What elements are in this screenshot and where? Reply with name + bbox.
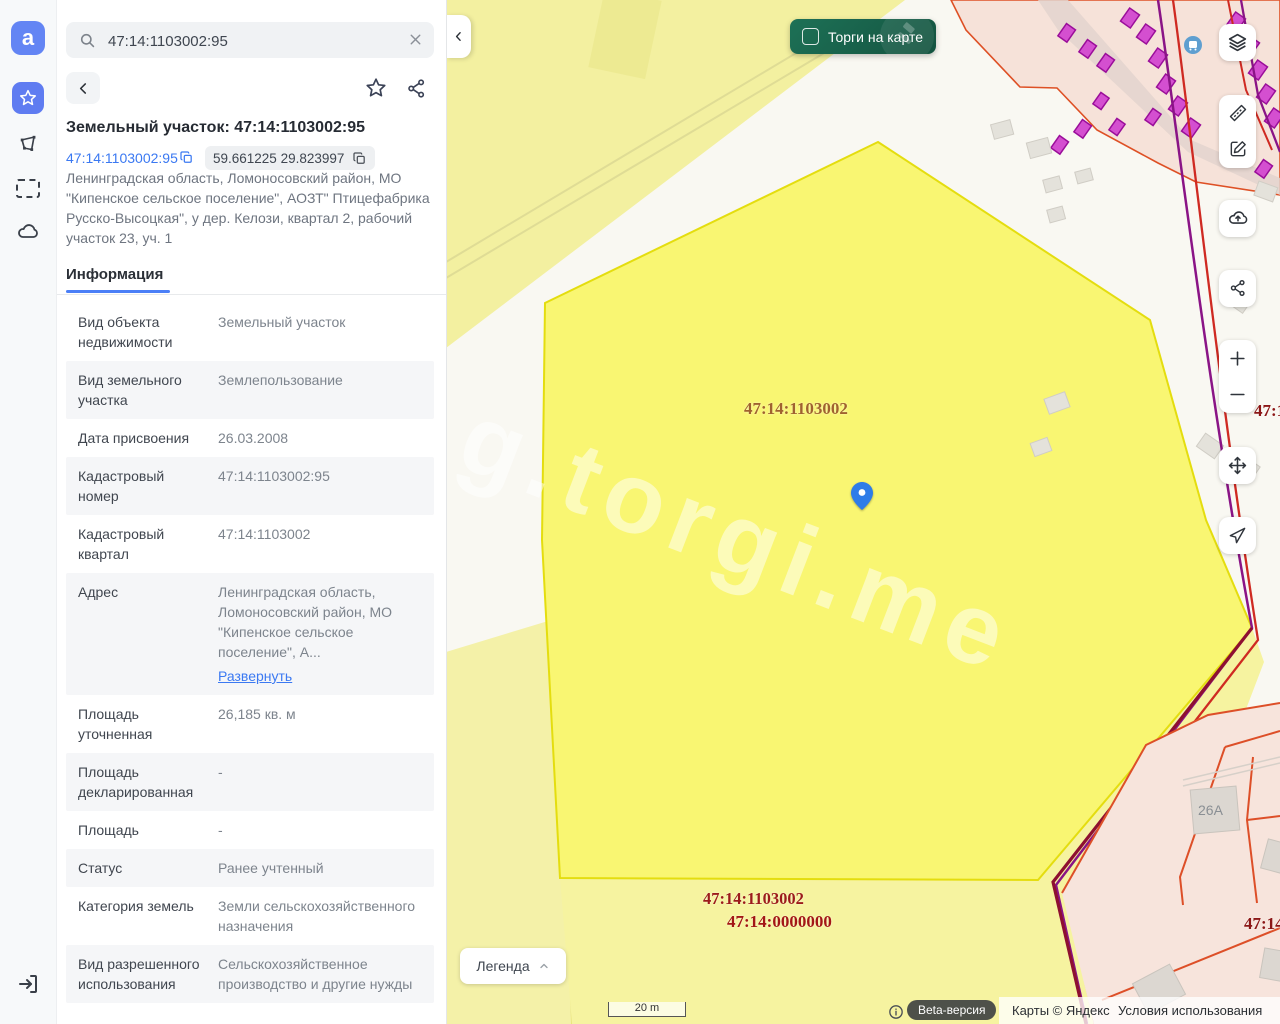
upload-control [1219, 200, 1256, 237]
icon-rail: a [0, 0, 57, 1024]
ruler-icon [1228, 103, 1248, 123]
table-row: Площадь уточненная 26,185 кв. м [66, 695, 434, 753]
rail-login-button[interactable] [12, 968, 44, 1000]
search-bar [66, 22, 434, 58]
rail-polygon-tool-button[interactable] [12, 128, 44, 160]
table-row: Площадь - [66, 811, 434, 849]
zoom-out-button[interactable] [1219, 376, 1256, 412]
coordinates-chip[interactable]: 59.661225 29.823997 [205, 146, 375, 170]
map-pin[interactable] [851, 482, 873, 511]
dashed-selection-icon [16, 179, 40, 198]
pan-control [1219, 447, 1256, 484]
ruler-button[interactable] [1219, 95, 1256, 131]
back-button[interactable] [66, 72, 100, 104]
cloud-upload-icon [1227, 207, 1249, 229]
upload-cloud-button[interactable] [1219, 200, 1256, 236]
layers-icon [1227, 32, 1248, 53]
scale-bar: 20 m [608, 1002, 686, 1017]
tab-active-underline [66, 290, 170, 293]
collapse-panel-button[interactable] [446, 15, 471, 58]
attributes-table: Вид объекта недвижимости Земельный участ… [66, 303, 434, 1003]
layers-button[interactable] [1219, 24, 1256, 60]
rail-cloud-button[interactable] [12, 216, 44, 248]
chevron-up-icon [538, 960, 550, 972]
toggle-label: Торги на карте [828, 29, 923, 45]
coordinates-value: 59.661225 29.823997 [213, 151, 344, 166]
star-icon [364, 76, 388, 100]
table-row: Кадастровый номер 47:14:1103002:95 [66, 457, 434, 515]
app-logo[interactable]: a [11, 21, 45, 55]
my-location-button[interactable] [1219, 517, 1256, 553]
table-row: Статус Ранее учтенный [66, 849, 434, 887]
plus-icon [1228, 349, 1247, 368]
expand-address-link[interactable]: Развернуть [218, 666, 292, 686]
table-row: Вид земельного участка Землепользование [66, 361, 434, 419]
tab-information[interactable]: Информация [66, 266, 163, 283]
chevron-left-icon [452, 30, 465, 43]
measure-edit-controls [1219, 95, 1256, 168]
clear-search-icon[interactable] [407, 31, 424, 48]
table-row: Дата присвоения 26.03.2008 [66, 419, 434, 457]
legend-button[interactable]: Легенда [460, 948, 566, 984]
table-row: Вид разрешенного использования Сельскохо… [66, 945, 434, 1003]
address-short-value: Ленинградская область, Ломоносовский рай… [218, 584, 392, 660]
toggle-checkbox[interactable] [802, 28, 819, 45]
navigation-arrow-icon [1228, 526, 1247, 545]
map-layers [446, 0, 1280, 1024]
legend-label: Легенда [476, 958, 529, 974]
address-text: Ленинградская область, Ломоносовский рай… [66, 168, 432, 248]
move-arrows-icon [1227, 455, 1248, 476]
share-control [1219, 270, 1256, 307]
table-row: Кадастровый квартал 47:14:1103002 [66, 515, 434, 573]
table-row: Площадь декларированная - [66, 753, 434, 811]
locate-control [1219, 517, 1256, 554]
rail-favorites-button[interactable] [12, 82, 44, 114]
cloud-icon [16, 220, 40, 244]
polygon-icon [17, 133, 39, 155]
terms-of-use-link[interactable]: Условия использования [1118, 1003, 1262, 1018]
layers-control [1219, 24, 1256, 61]
share-button[interactable] [402, 74, 430, 102]
copy-icon[interactable] [352, 151, 367, 166]
zoom-in-button[interactable] [1219, 340, 1256, 376]
search-icon [78, 31, 97, 50]
zoom-controls [1219, 340, 1256, 413]
star-icon [18, 88, 38, 108]
table-row: Категория земель Земли сельскохозяйствен… [66, 887, 434, 945]
beta-badge: Beta-версия [907, 1000, 996, 1020]
share-map-button[interactable] [1219, 270, 1256, 306]
share-icon [405, 77, 428, 100]
rail-select-area-button[interactable] [12, 172, 44, 204]
login-icon [16, 972, 40, 996]
page-title: Земельный участок: 47:14:1103002:95 [66, 119, 438, 137]
yandex-maps-attribution-link[interactable]: Карты © Яндекс [1012, 1003, 1110, 1018]
auctions-on-map-toggle[interactable]: Торги на карте [790, 19, 936, 54]
share-icon [1228, 278, 1248, 298]
map-canvas[interactable]: g.torgi.me 47:14:1103002 47:14:1103002 4… [446, 0, 1280, 1024]
table-row: Адрес Ленинградская область, Ломоносовск… [66, 573, 434, 695]
info-panel: Земельный участок: 47:14:1103002:95 47:1… [56, 0, 447, 1024]
cadastral-number-link[interactable]: 47:14:1103002:95 [66, 150, 178, 166]
tab-divider [56, 294, 446, 295]
transit-stop-icon [1184, 36, 1202, 54]
pan-button[interactable] [1219, 447, 1256, 483]
minus-icon [1228, 385, 1247, 404]
copy-icon[interactable] [179, 150, 194, 165]
favorite-button[interactable] [362, 74, 390, 102]
edit-button[interactable] [1219, 131, 1256, 167]
chevron-left-icon [75, 80, 92, 97]
info-button[interactable] [887, 1003, 905, 1021]
edit-icon [1228, 139, 1248, 159]
search-input[interactable] [106, 22, 400, 60]
table-row: Вид объекта недвижимости Земельный участ… [66, 303, 434, 361]
